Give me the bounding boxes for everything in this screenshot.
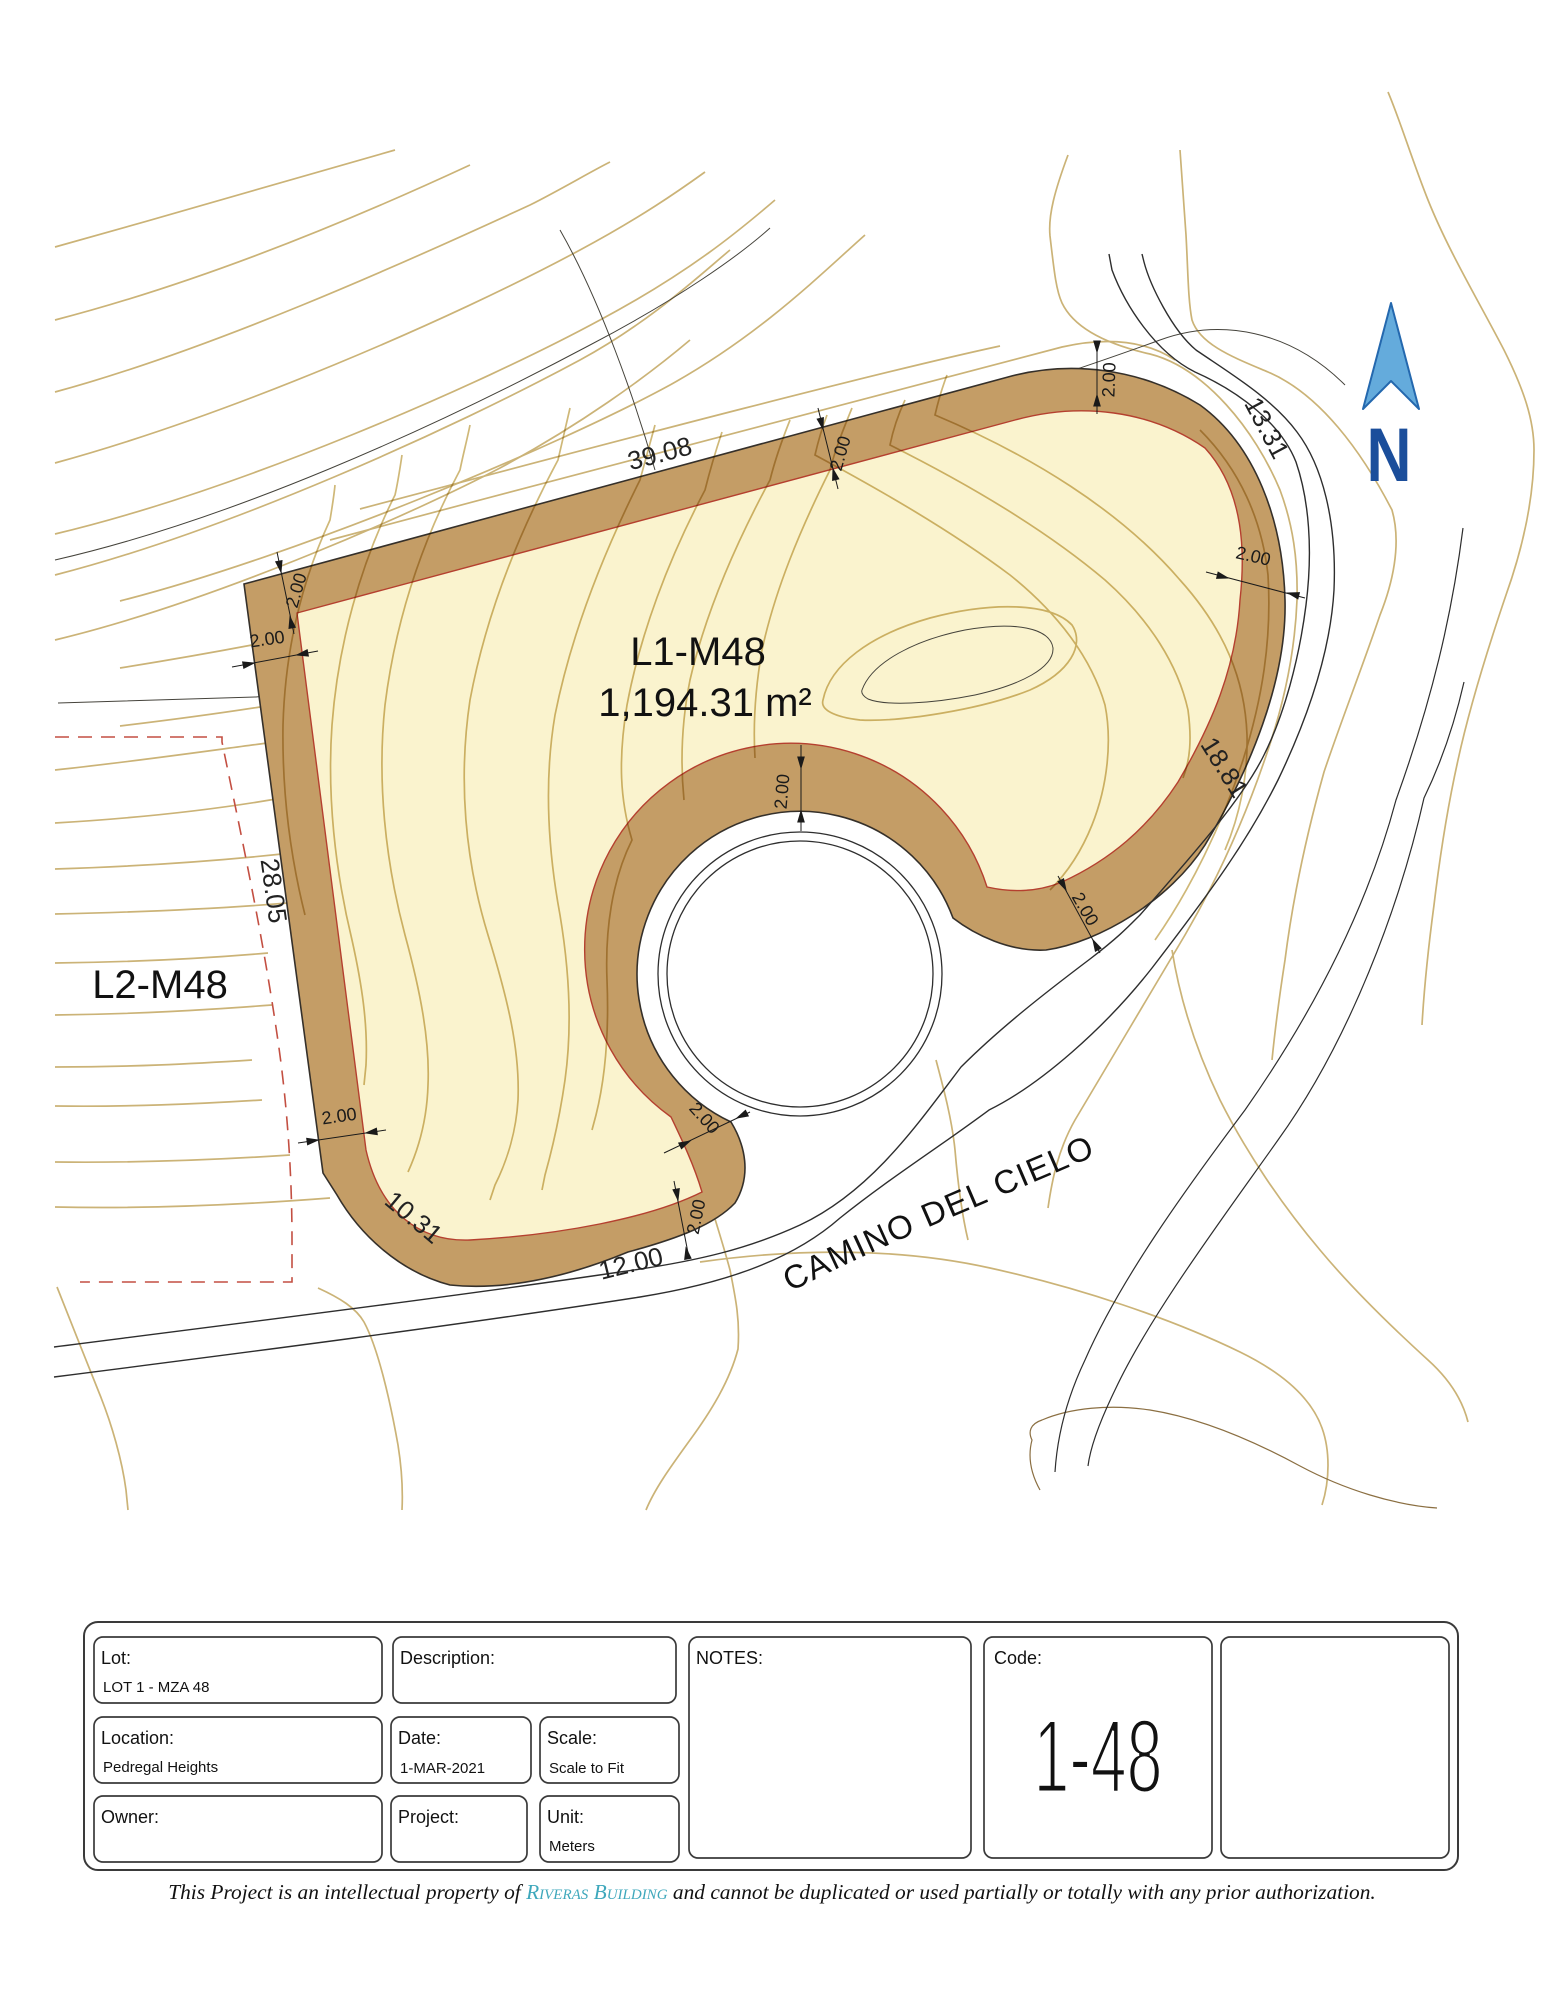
svg-text:Date:: Date: [398, 1728, 441, 1748]
svg-text:1,194.31 m²: 1,194.31 m² [598, 681, 811, 725]
svg-text:Lot:: Lot: [101, 1648, 131, 1668]
svg-text:Scale to Fit: Scale to Fit [549, 1760, 625, 1777]
svg-text:N: N [1366, 412, 1411, 497]
svg-text:2.00: 2.00 [771, 773, 794, 810]
svg-text:NOTES:: NOTES: [696, 1648, 763, 1668]
svg-text:Unit:: Unit: [547, 1807, 584, 1827]
svg-text:1-MAR-2021: 1-MAR-2021 [400, 1760, 485, 1777]
svg-text:LOT 1 - MZA 48: LOT 1 - MZA 48 [103, 1679, 209, 1696]
svg-text:1-48: 1-48 [1033, 1699, 1162, 1814]
svg-text:Scale:: Scale: [547, 1728, 597, 1748]
svg-text:L2-M48: L2-M48 [92, 963, 228, 1007]
svg-text:Meters: Meters [549, 1838, 595, 1855]
svg-text:Pedregal Heights: Pedregal Heights [103, 1759, 218, 1776]
svg-text:This Project is an intellectua: This Project is an intellectual property… [168, 1880, 1376, 1904]
svg-text:Project:: Project: [398, 1807, 459, 1827]
svg-text:2.00: 2.00 [1098, 362, 1119, 398]
svg-text:13.31: 13.31 [1238, 392, 1295, 464]
svg-text:Owner:: Owner: [101, 1807, 159, 1827]
svg-text:Location:: Location: [101, 1728, 174, 1748]
svg-text:Description:: Description: [400, 1648, 495, 1668]
svg-text:CAMINO DEL CIELO: CAMINO DEL CIELO [777, 1127, 1100, 1298]
svg-text:L1-M48: L1-M48 [630, 630, 766, 674]
svg-text:Code:: Code: [994, 1648, 1042, 1668]
